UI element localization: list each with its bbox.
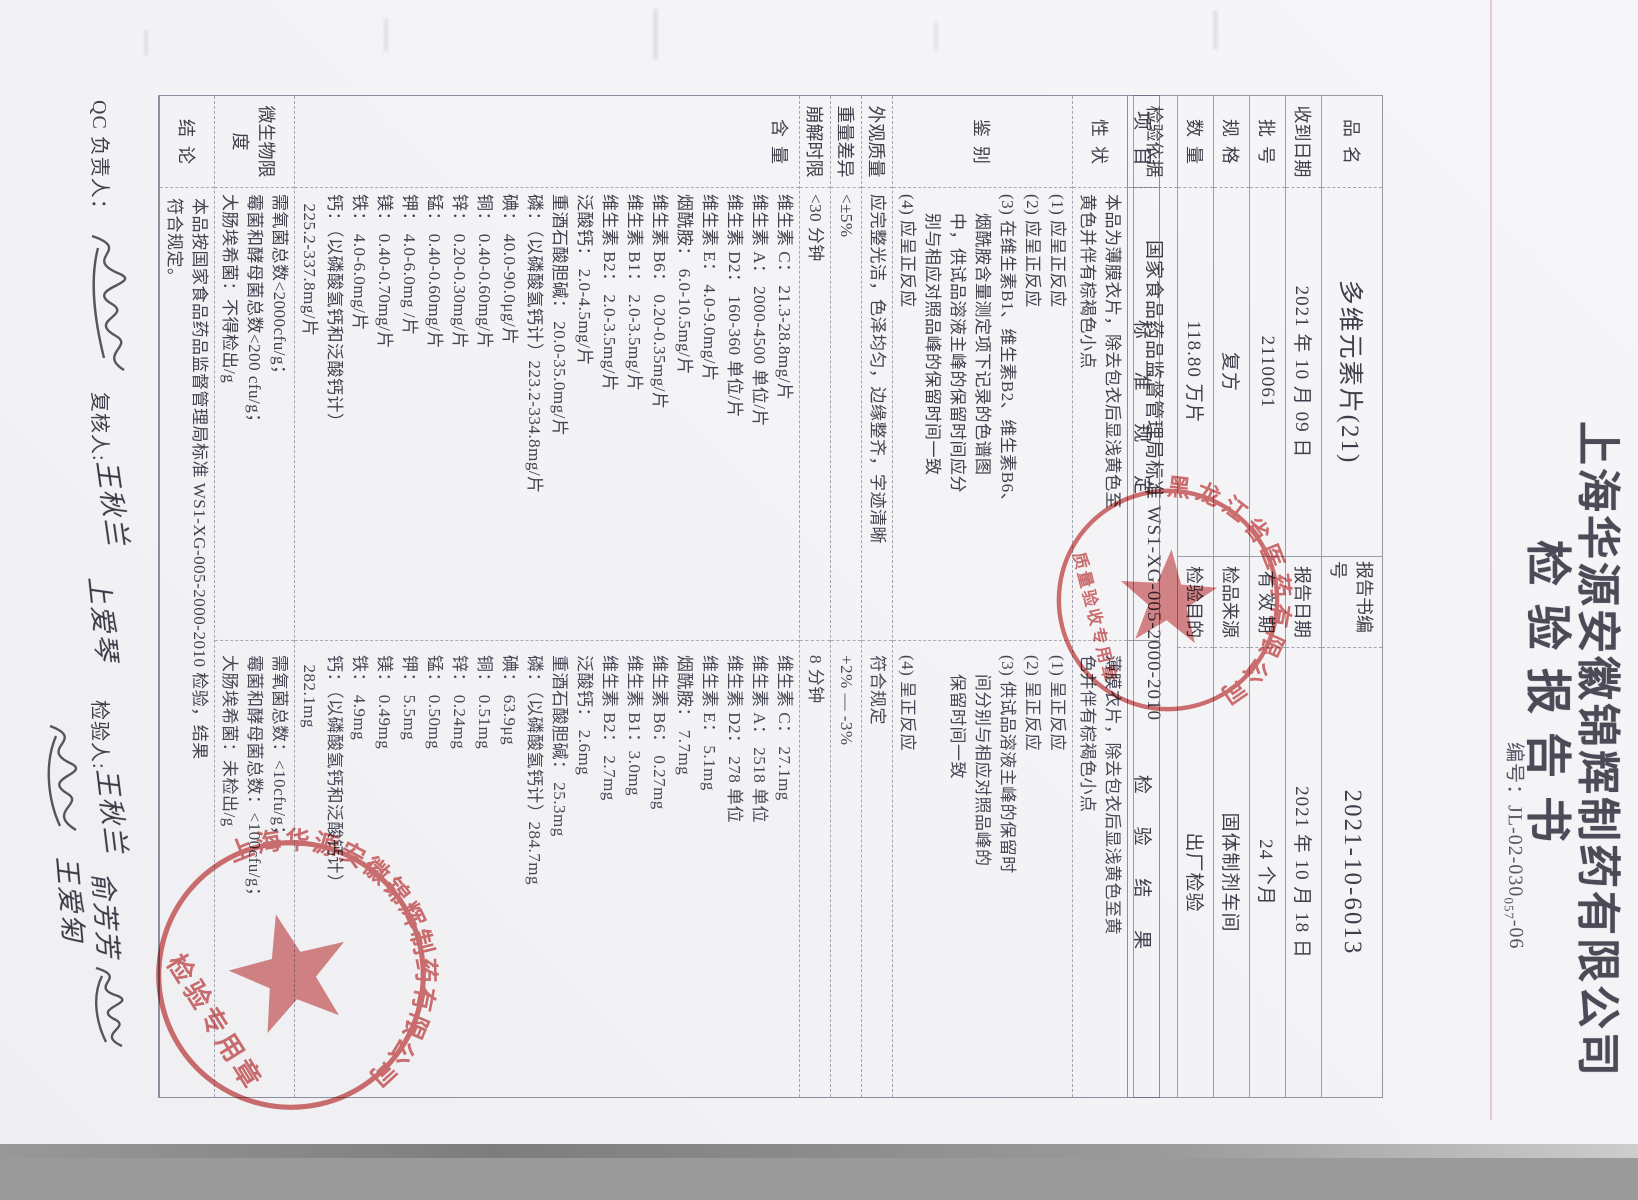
scan-artifact xyxy=(144,30,148,56)
star-icon xyxy=(217,891,376,1052)
result-cell: (1) 呈正反应(2) 呈正反应(3) 供试品溶液主峰的保留时 间分别与相应对照… xyxy=(893,641,1072,1097)
result-cell: 8 分钟 xyxy=(800,641,830,1097)
standard-line: 中，供试品溶液主峰的保留时间应分 xyxy=(945,194,970,634)
item-cell: 崩解时限 xyxy=(800,96,830,188)
item-cell: 重量差异 xyxy=(831,96,861,188)
result-line: 间分别与相应对照品峰的 xyxy=(970,655,995,1091)
result-line: 维生素 A： 2518 单位 xyxy=(747,655,772,1091)
info-value: 2021 年 10 月 18 日 xyxy=(1286,648,1321,1097)
standard-line: 镁： 0.40-0.70mg/片 xyxy=(372,194,397,634)
item-cell: 鉴 别 xyxy=(893,96,1072,188)
result-line: 维生素 D2： 278 单位 xyxy=(722,655,747,1091)
scanner-edge-band xyxy=(0,1144,1638,1158)
item-cell: 微生物限度 xyxy=(215,96,294,188)
table-row: 重量差异<±5%+2% — -3% xyxy=(830,96,861,1097)
standard-cell: 维生素 C： 21.3-28.8mg/片维生素 A： 2000-4500 单位/… xyxy=(295,188,799,641)
standard-line: (4) 应呈正反应 xyxy=(895,194,920,634)
standard-line: 锌： 0.20-0.30mg/片 xyxy=(447,194,472,634)
reviewer-signature: 王秋兰 xyxy=(89,457,140,549)
report-page: 上海华源安徽锦辉制药有限公司 检验报告书 编号：JL-02-030057-06 … xyxy=(0,0,1638,1158)
standard-line: <±5% xyxy=(834,194,859,634)
qc-label: QC 负责人： xyxy=(87,100,116,220)
standard-cell: 应完整光洁，色泽均匀，边缘整齐，字迹清晰 xyxy=(862,188,892,641)
result-line: 维生素 B2： 2.7mg xyxy=(597,655,622,1091)
standard-line: 维生素 D2： 160-360 单位/片 xyxy=(722,194,747,634)
info-label: 批 号 xyxy=(1250,96,1285,188)
standard-line: 大肠埃希菌：不得检出/g xyxy=(217,194,242,634)
reviewer-signature-2: 上爱琴 xyxy=(81,574,129,665)
standard-line: 维生素 B6： 0.20-0.35mg/片 xyxy=(647,194,672,634)
result-line: 泛酸钙： 2.6mg xyxy=(572,655,597,1091)
info-value: 2021-10-6013 xyxy=(1322,648,1382,1097)
standard-line: 磷：（以磷酸氢钙计）223.2-334.8mg/片 xyxy=(522,194,547,634)
standard-line: 铁： 4.0-6.0mg/片 xyxy=(347,194,372,634)
standard-line: 锰： 0.40-0.60mg/片 xyxy=(422,194,447,634)
standard-cell: 需氧菌总数<2000cfu/g；霉菌和酵母菌总数<200 cfu/g；大肠埃希菌… xyxy=(215,188,294,641)
standard-cell: <±5% xyxy=(831,188,861,641)
standard-line: 重酒石酸胆碱： 20.0-35.0mg/片 xyxy=(547,194,572,634)
result-line: +2% — -3% xyxy=(834,655,859,1091)
result-line: (3) 供试品溶液主峰的保留时 xyxy=(995,655,1020,1091)
standard-line: 铜： 0.40-0.60mg/片 xyxy=(472,194,497,634)
result-line: 重酒石酸胆碱： 25.3mg xyxy=(547,655,572,1091)
standard-line: 钙：（以磷酸氢钙和泛酸钙计） xyxy=(322,194,347,634)
scan-artifact xyxy=(934,22,938,50)
item-cell: 外观质量 xyxy=(862,96,892,188)
standard-line: 钾： 4.0-6.0mg /片 xyxy=(397,194,422,634)
standard-line: 维生素 B2： 2.0-3.5mg/片 xyxy=(597,194,622,634)
standard-line: <30 分钟 xyxy=(803,194,828,634)
info-label: 数 量 xyxy=(1178,96,1213,188)
result-line: (2) 呈正反应 xyxy=(1020,655,1045,1091)
standard-line: 应完整光洁，色泽均匀，边缘整齐，字迹清晰 xyxy=(865,194,890,634)
report-code-value: JL-02-030 xyxy=(1504,805,1527,898)
standard-line: (3) 在维生素B1、维生素B2、维生素B6、 xyxy=(995,194,1020,634)
standard-line: 需氧菌总数<2000cfu/g； xyxy=(267,194,292,634)
standard-cell: <30 分钟 xyxy=(800,188,830,641)
item-cell: 含 量 xyxy=(295,96,799,188)
standard-line: 225.2-337.8mg/片 xyxy=(297,194,322,634)
result-line: 烟酰胺： 7.7mg xyxy=(672,655,697,1091)
inspector-signature: 王秋兰 xyxy=(89,766,138,857)
result-cell: +2% — -3% xyxy=(831,641,861,1097)
reviewer-label: 复核人: xyxy=(87,392,116,462)
result-line: 保留时间一致 xyxy=(945,655,970,1091)
standard-line: 维生素 B1： 2.0-3.5mg/片 xyxy=(622,194,647,634)
info-label: 规 格 xyxy=(1214,96,1249,188)
result-line: 维生素 E： 5.1mg xyxy=(697,655,722,1091)
result-line: 磷：（以磷酸氢钙计）284.7mg xyxy=(522,655,547,1091)
info-label: 收到日期 xyxy=(1286,96,1321,188)
item-cell: 结 论 xyxy=(160,96,214,188)
report-code-sub: 057 xyxy=(1502,897,1517,920)
scanned-report: 上海华源安徽锦辉制药有限公司 检验报告书 编号：JL-02-030057-06 … xyxy=(0,0,1638,1158)
qc-signature-scribble xyxy=(72,228,142,378)
report-code-tail: -06 xyxy=(1505,920,1527,950)
result-line: 8 分钟 xyxy=(803,655,828,1091)
stamp-inner-text: 质量验收专用章 xyxy=(1069,550,1121,686)
report-code-label: 编号： xyxy=(1503,742,1526,805)
standard-line: 碘： 40.0-90.0μg/片 xyxy=(497,194,522,634)
info-value: 多维元素片(21) xyxy=(1322,188,1382,556)
result-cell: 符合规定 xyxy=(862,641,892,1097)
scan-artifact xyxy=(384,18,388,52)
header-item: 项 目 xyxy=(1128,96,1159,188)
scan-artifact xyxy=(1213,10,1218,50)
info-row: 品 名多维元素片(21)报告书编号2021-10-6013 xyxy=(1321,96,1382,1097)
extra-signature-scribble-2 xyxy=(32,720,92,840)
table-row: 崩解时限<30 分钟8 分钟 xyxy=(799,96,830,1097)
standard-line: 维生素 C： 21.3-28.8mg/片 xyxy=(772,194,797,634)
standard-line: 烟酰胺： 6.0-10.5mg/片 xyxy=(672,194,697,634)
standard-line: 别与相应对照品峰的保留时间一致 xyxy=(920,194,945,634)
result-line xyxy=(920,655,945,1091)
standard-line: 霉菌和酵母菌总数<200 cfu/g； xyxy=(242,194,267,634)
scan-fold-line xyxy=(1490,0,1492,1120)
info-value: 2021 年 10 月 09 日 xyxy=(1286,188,1321,556)
item-cell: 性 状 xyxy=(1073,96,1127,188)
report-code: 编号：JL-02-030057-06 xyxy=(1499,742,1533,950)
scan-artifact xyxy=(653,8,658,60)
standard-line: 烟酰胺含量测定项下记录的色谱图 xyxy=(970,194,995,634)
table-row: 外观质量应完整光洁，色泽均匀，边缘整齐，字迹清晰符合规定 xyxy=(861,96,892,1097)
standard-line: 泛酸钙： 2.0-4.5mg/片 xyxy=(572,194,597,634)
info-label: 品 名 xyxy=(1322,96,1382,188)
info-label: 报告书编号 xyxy=(1322,556,1382,648)
result-line: 符合规定 xyxy=(865,655,890,1091)
report-title: 检验报告书 xyxy=(1518,320,1584,1080)
result-line: 维生素 C： 27.1mg xyxy=(772,655,797,1091)
result-line: 维生素 B6： 0.27mg xyxy=(647,655,672,1091)
standard-line: 维生素 E： 4.0-9.0mg/片 xyxy=(697,194,722,634)
result-line: 维生素 B1：3.0mg xyxy=(622,655,647,1091)
star-icon xyxy=(1116,541,1229,657)
standard-line: 维生素 A： 2000-4500 单位/片 xyxy=(747,194,772,634)
info-value: 24 个月 xyxy=(1250,648,1285,1097)
result-line: (4) 呈正反应 xyxy=(895,655,920,1091)
